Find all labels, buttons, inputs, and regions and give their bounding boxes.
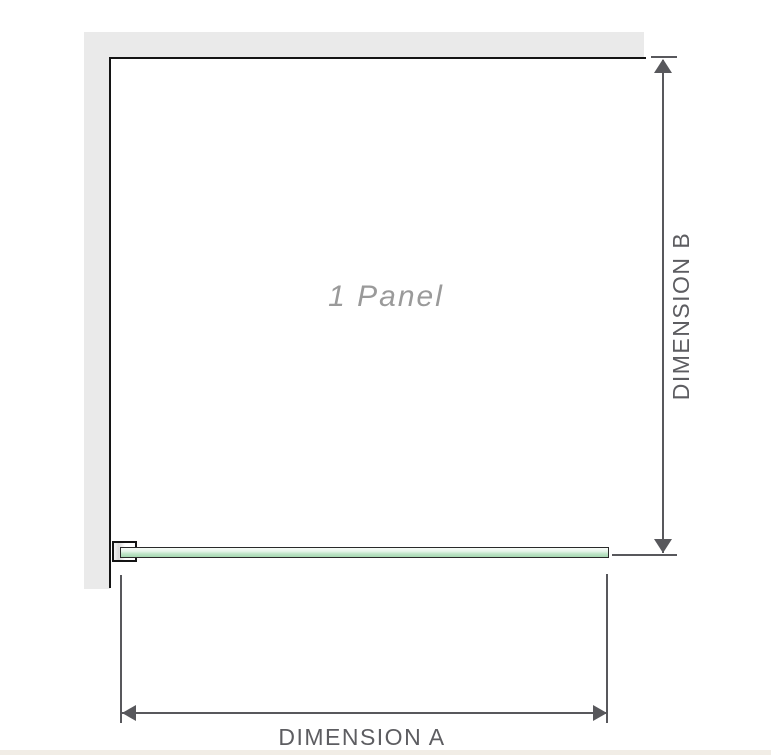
arrow-right-icon [593,705,607,721]
dimension-a-extension-left [120,575,122,723]
panel-outline-top [109,57,646,59]
arrow-left-icon [122,705,136,721]
panel-outline-left [109,57,111,588]
dimension-a-label: DIMENSION A [242,724,482,751]
arrow-up-icon [654,59,672,73]
footer-strip [0,750,771,755]
panel-count-label: 1 Panel [286,280,486,314]
panel-dimension-diagram: 1 Panel DIMENSION B DIMENSION A [0,0,771,755]
dimension-b-label: DIMENSION B [669,206,693,426]
dimension-b-top-tick [651,56,677,58]
arrow-down-icon [654,539,672,553]
dimension-a-extension-right [606,574,608,723]
dimension-b-bottom-tick [612,554,677,556]
dimension-b-line [662,60,664,553]
wall-top [84,32,644,57]
wall-left [84,32,110,589]
dimension-a-line [122,712,607,714]
glass-panel-plan-view [120,547,609,558]
